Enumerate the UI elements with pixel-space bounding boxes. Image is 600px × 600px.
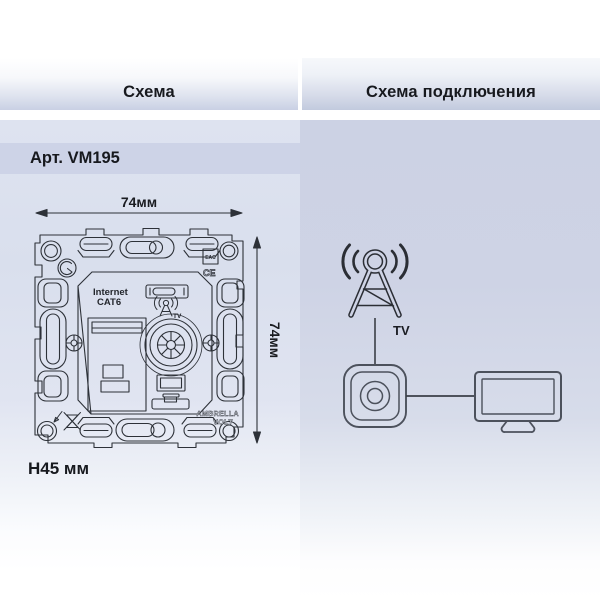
bubble-level-icon: [146, 285, 188, 298]
tab-schema-label: Схема: [123, 83, 175, 102]
connection-diagram: TV: [300, 195, 600, 495]
top-center-slot: [120, 237, 174, 258]
brand-line1: AMBRELLA: [197, 411, 239, 418]
dimension-height: [254, 237, 261, 443]
wall-socket-icon: [344, 365, 406, 427]
article-number: Арт. VM195: [30, 149, 120, 168]
claw-screw-icon: [58, 259, 76, 277]
mount-depth-label: H45 мм: [28, 459, 89, 479]
dimension-width: [36, 210, 242, 217]
bottom-slots: [78, 418, 218, 442]
tab-schema: Схема: [0, 58, 298, 110]
coax-connector-icon: [140, 314, 202, 376]
width-dimension-label: 74мм: [121, 195, 157, 210]
rj45-jack-icon: [88, 318, 146, 411]
cat6-label: CAT6: [97, 297, 121, 308]
side-clamps-and-slots: [38, 279, 244, 401]
broadcast-antenna-icon: [343, 245, 407, 315]
mini-monitor-icon: [152, 375, 189, 409]
marking-symbols: [54, 412, 81, 431]
article-number-band: Арт. VM195: [0, 143, 300, 174]
brand-line2: VOLT: [213, 420, 233, 427]
eac-mark: EAC: [205, 255, 216, 261]
tv-port-label: TV: [173, 313, 182, 320]
ce-mark: CE: [203, 268, 216, 278]
tab-connection-schema-label: Схема подключения: [366, 83, 536, 102]
tv-icon: [475, 372, 561, 432]
tv-signal-label: TV: [393, 323, 410, 338]
height-dimension-label: 74мм: [267, 322, 283, 358]
product-schema-page: Схема Схема подключения Арт. VM195: [0, 0, 600, 600]
tab-connection-schema: Схема подключения: [302, 58, 600, 110]
section-headers: Схема Схема подключения: [0, 58, 600, 110]
